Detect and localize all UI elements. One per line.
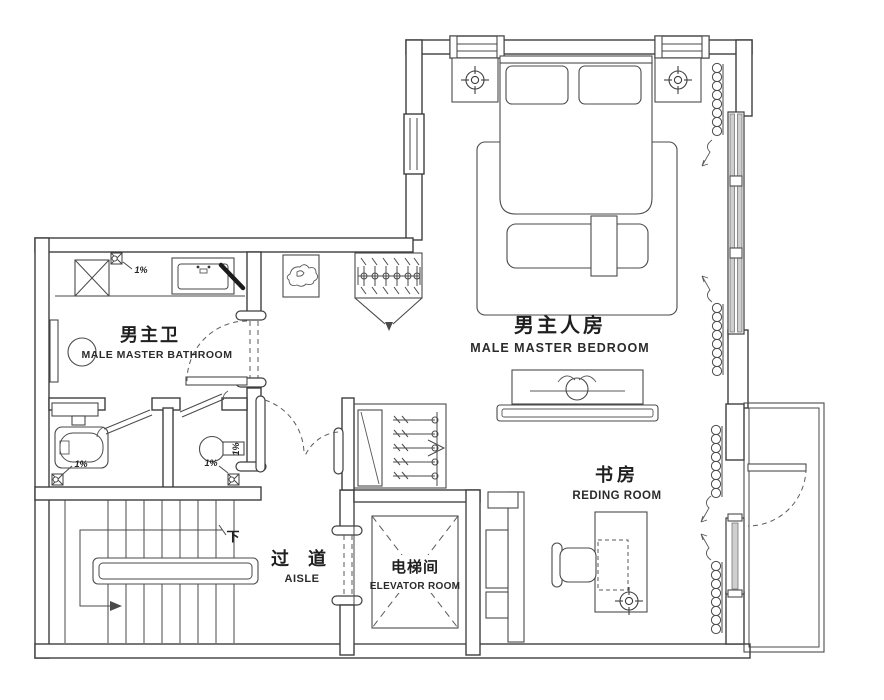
nightstand-right [655,58,701,102]
slope-leader [219,466,228,473]
slope-label: 1% [74,459,87,469]
curtain-top-right [702,63,723,166]
wall-wing-right [736,40,752,116]
entry-closet [354,404,446,488]
slope-leader [123,262,132,269]
arrow-icon [385,322,393,331]
toilet-door [180,391,228,417]
wall-main-top [35,238,413,252]
shelf-knob [72,416,85,425]
opening-cap [332,526,362,535]
balcony-door-swing [748,468,806,526]
wall-bath-corridor-upper [247,252,261,314]
balcony-door-leaf [748,464,806,471]
wall-reading-right-a [726,404,744,460]
stairs [65,500,258,643]
wall-closet-left [342,398,354,490]
wall-bath-partition [163,408,173,490]
pillow [506,66,568,104]
label-aisle-en: AISLE [285,573,320,585]
wardrobe-front [355,298,422,324]
cabinet-b [486,592,508,618]
curtain-reading-top [701,425,722,522]
curtain-reading-bottom [701,534,722,634]
bench-runner [591,216,617,276]
label-master-bathroom-en: MALE MASTER BATHROOM [82,349,233,361]
master-bathroom: 1% 1% 1% 1% [50,253,247,485]
washing-machine [75,260,109,296]
slope-label-rotated: 1% [231,442,241,455]
floor-plan-page: 1% 1% 1% 1% [0,0,884,700]
floor-plan-canvas: 1% 1% 1% 1% [0,0,884,700]
slope-label: 1% [204,458,217,468]
window-band-right [728,112,744,334]
nightstand-left [452,58,498,102]
wall-main-bottom [35,644,750,658]
wall-main-left [35,238,49,658]
cabinet-a [486,530,508,588]
label-elevator-zh: 电梯间 [391,558,439,576]
window-top-1 [450,36,504,58]
floor-drain-icon [228,474,239,485]
wall-right-mid [728,330,748,408]
wall-bath-mid-c [222,398,247,410]
cabinet-tall [508,492,524,642]
entry-door-swing [265,400,304,455]
arrow-icon [110,601,122,611]
wall-niche [50,320,58,382]
label-master-bedroom-en: MALE MASTER BEDROOM [470,341,649,355]
bath-door-leaf [186,377,247,385]
bench [507,224,648,268]
label-master-bedroom-zh: 男主人房 [514,313,606,337]
floor-drain-icon [111,253,122,264]
corridor [283,253,446,488]
decor-object [283,255,319,297]
stair-handrail [93,558,258,584]
vanity-sink [172,258,234,294]
balcony-inner-rail [749,408,819,647]
window-top-2 [655,36,709,58]
opening-cap [332,596,362,605]
wall-elev-top [354,490,480,502]
slope-label: 1% [134,265,147,275]
wall-reading-right-b [726,592,744,644]
reading-room [486,492,647,642]
label-master-bathroom-zh: 男主卫 [120,324,180,345]
balcony-outer-wall [744,403,824,652]
entry-door-swing [305,432,338,456]
pillow [579,66,641,104]
master-bedroom [452,56,701,421]
label-aisle-zh: 过 道 [271,548,333,569]
wall-elev-left-a [340,490,354,528]
label-stairs-down: 下 [226,529,239,544]
door-jamb [256,396,265,472]
opening-cap [236,311,266,320]
cabinet-top [488,492,518,508]
label-reading-room-en: REDING ROOM [572,490,661,502]
shelf [52,403,98,416]
label-reading-room-zh: 书房 [595,464,639,485]
wall-stairhall-top [35,487,261,500]
double-bed [500,56,652,214]
wall-elev-left-b [340,605,354,655]
window-reading-right [726,514,744,597]
window-wing-left [404,114,424,174]
floor-drain-icon [52,474,63,485]
curtains [701,63,723,633]
curtain-mid-right [702,276,723,376]
wall-elev-right [466,490,480,655]
tv-cabinet [497,370,658,421]
door-jamb [334,428,343,474]
balcony [744,403,824,652]
chair [552,543,596,587]
wardrobe-top [355,253,422,331]
label-elevator-en: ELEVATOR ROOM [370,581,461,592]
